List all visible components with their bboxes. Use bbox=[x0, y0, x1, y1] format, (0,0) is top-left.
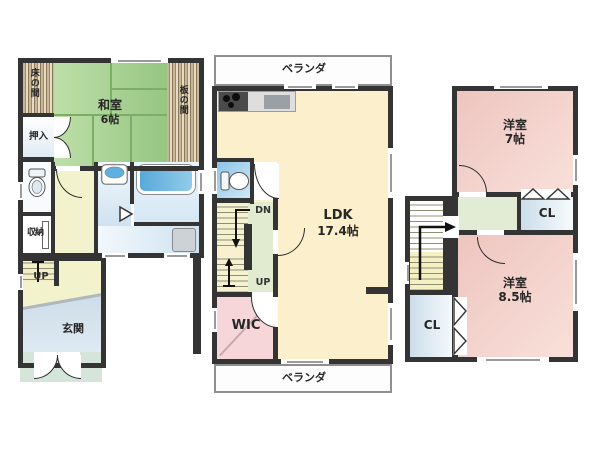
western7-label: 洋室 7帖 bbox=[480, 118, 550, 147]
window bbox=[477, 357, 549, 362]
window bbox=[573, 253, 578, 311]
floor-3-plan: 洋室 7帖 CL 洋室 8.5帖 CL bbox=[0, 0, 604, 460]
window bbox=[405, 262, 409, 284]
western85-label: 洋室 8.5帖 bbox=[480, 276, 550, 305]
floorplan-canvas: 床の間 押入 和室 6帖 板の間 収納 UP 玄関 ベランダ ベランダ bbox=[0, 0, 604, 460]
window bbox=[494, 84, 548, 89]
closet-bottom-label: CL bbox=[410, 318, 454, 332]
accordion-door-icon bbox=[521, 188, 571, 200]
window bbox=[573, 155, 578, 185]
closet-top-label: CL bbox=[524, 206, 570, 220]
folding-door-icon bbox=[453, 297, 468, 356]
stairs-arrow-icon bbox=[414, 222, 458, 284]
